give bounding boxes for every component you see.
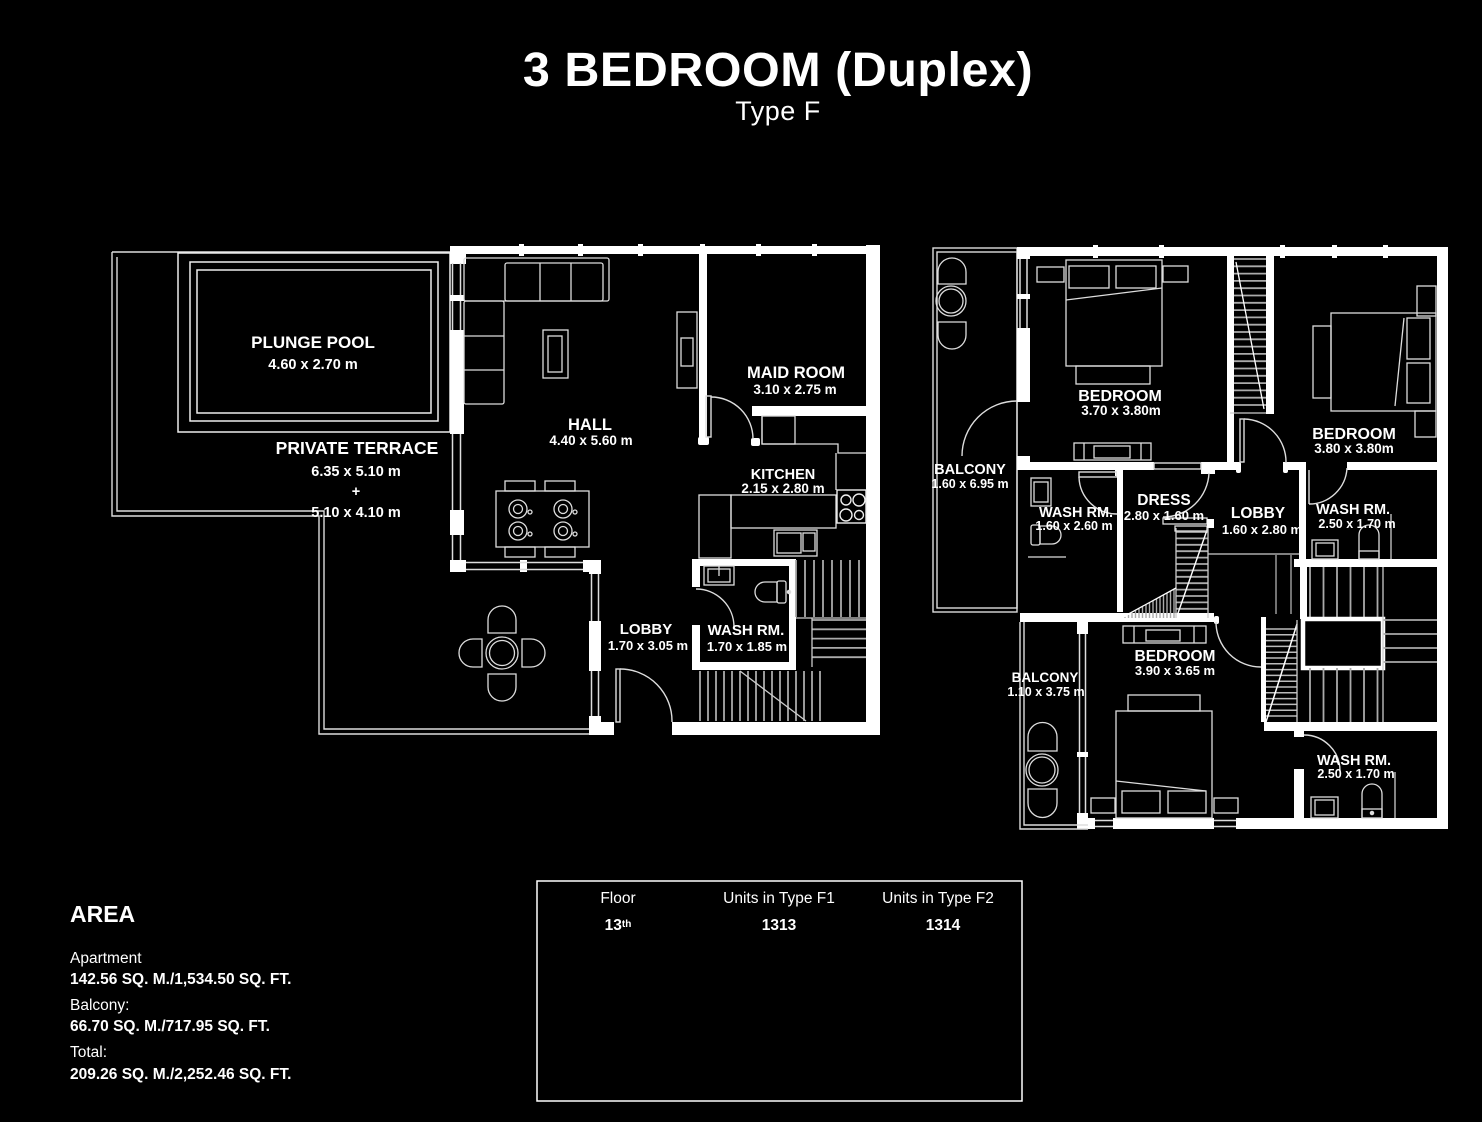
svg-text:Total:: Total: bbox=[70, 1044, 107, 1061]
svg-text:2.15 x 2.80 m: 2.15 x 2.80 m bbox=[741, 481, 824, 496]
svg-text:4.40 x 5.60 m: 4.40 x 5.60 m bbox=[549, 433, 632, 448]
svg-text:2.80 x 1.60 m: 2.80 x 1.60 m bbox=[1124, 508, 1204, 523]
svg-text:3.70 x 3.80m: 3.70 x 3.80m bbox=[1081, 403, 1161, 418]
svg-text:3.90 x 3.65 m: 3.90 x 3.65 m bbox=[1135, 663, 1215, 678]
svg-text:WASH RM.: WASH RM. bbox=[708, 622, 785, 639]
svg-text:Apartment: Apartment bbox=[70, 950, 142, 967]
svg-text:3.80 x 3.80m: 3.80 x 3.80m bbox=[1314, 441, 1394, 456]
svg-text:MAID ROOM: MAID ROOM bbox=[747, 364, 845, 382]
svg-text:4.60 x 2.70 m: 4.60 x 2.70 m bbox=[268, 357, 358, 373]
svg-text:2.50 x 1.70 m: 2.50 x 1.70 m bbox=[1317, 767, 1394, 781]
svg-text:AREA: AREA bbox=[70, 901, 135, 927]
svg-text:Units in Type F2: Units in Type F2 bbox=[882, 890, 994, 907]
svg-text:66.70 SQ. M./717.95 SQ. FT.: 66.70 SQ. M./717.95 SQ. FT. bbox=[70, 1018, 270, 1035]
svg-text:5.10 x 4.10 m: 5.10 x 4.10 m bbox=[311, 505, 401, 521]
svg-text:PRIVATE TERRACE: PRIVATE TERRACE bbox=[276, 438, 439, 458]
svg-text:1.70 x 3.05 m: 1.70 x 3.05 m bbox=[608, 638, 688, 653]
svg-text:1314: 1314 bbox=[926, 917, 961, 934]
svg-text:HALL: HALL bbox=[568, 416, 612, 434]
svg-text:PLUNGE POOL: PLUNGE POOL bbox=[251, 333, 375, 352]
svg-text:Balcony:: Balcony: bbox=[70, 997, 129, 1014]
svg-text:LOBBY: LOBBY bbox=[620, 621, 673, 638]
svg-text:1.60 x 6.95 m: 1.60 x 6.95 m bbox=[931, 477, 1008, 491]
svg-text:3.10 x 2.75 m: 3.10 x 2.75 m bbox=[753, 382, 836, 397]
svg-text:142.56 SQ. M./1,534.50 SQ. FT.: 142.56 SQ. M./1,534.50 SQ. FT. bbox=[70, 971, 291, 988]
svg-text:1.10 x 3.75 m: 1.10 x 3.75 m bbox=[1007, 685, 1084, 699]
svg-text:Units in Type F1: Units in Type F1 bbox=[723, 890, 835, 907]
svg-text:Floor: Floor bbox=[600, 890, 635, 907]
svg-text:+: + bbox=[352, 484, 360, 500]
svg-text:BALCONY: BALCONY bbox=[1012, 670, 1079, 685]
svg-text:1.70 x 1.85 m: 1.70 x 1.85 m bbox=[707, 639, 787, 654]
svg-text:DRESS: DRESS bbox=[1137, 492, 1190, 509]
svg-text:LOBBY: LOBBY bbox=[1231, 505, 1286, 522]
svg-text:1.60 x 2.60 m: 1.60 x 2.60 m bbox=[1035, 519, 1112, 533]
svg-text:6.35 x 5.10 m: 6.35 x 5.10 m bbox=[311, 464, 401, 480]
svg-text:1.60 x 2.80 m: 1.60 x 2.80 m bbox=[1222, 522, 1302, 537]
svg-text:2.50 x 1.70 m: 2.50 x 1.70 m bbox=[1318, 517, 1395, 531]
svg-text:3 BEDROOM (Duplex): 3 BEDROOM (Duplex) bbox=[523, 43, 1033, 97]
svg-text:209.26 SQ. M./2,252.46 SQ. FT.: 209.26 SQ. M./2,252.46 SQ. FT. bbox=[70, 1066, 291, 1083]
svg-text:Type F: Type F bbox=[735, 96, 821, 126]
svg-text:BALCONY: BALCONY bbox=[934, 462, 1006, 478]
svg-text:1313: 1313 bbox=[762, 917, 797, 934]
svg-text:WASH RM.: WASH RM. bbox=[1316, 502, 1390, 518]
